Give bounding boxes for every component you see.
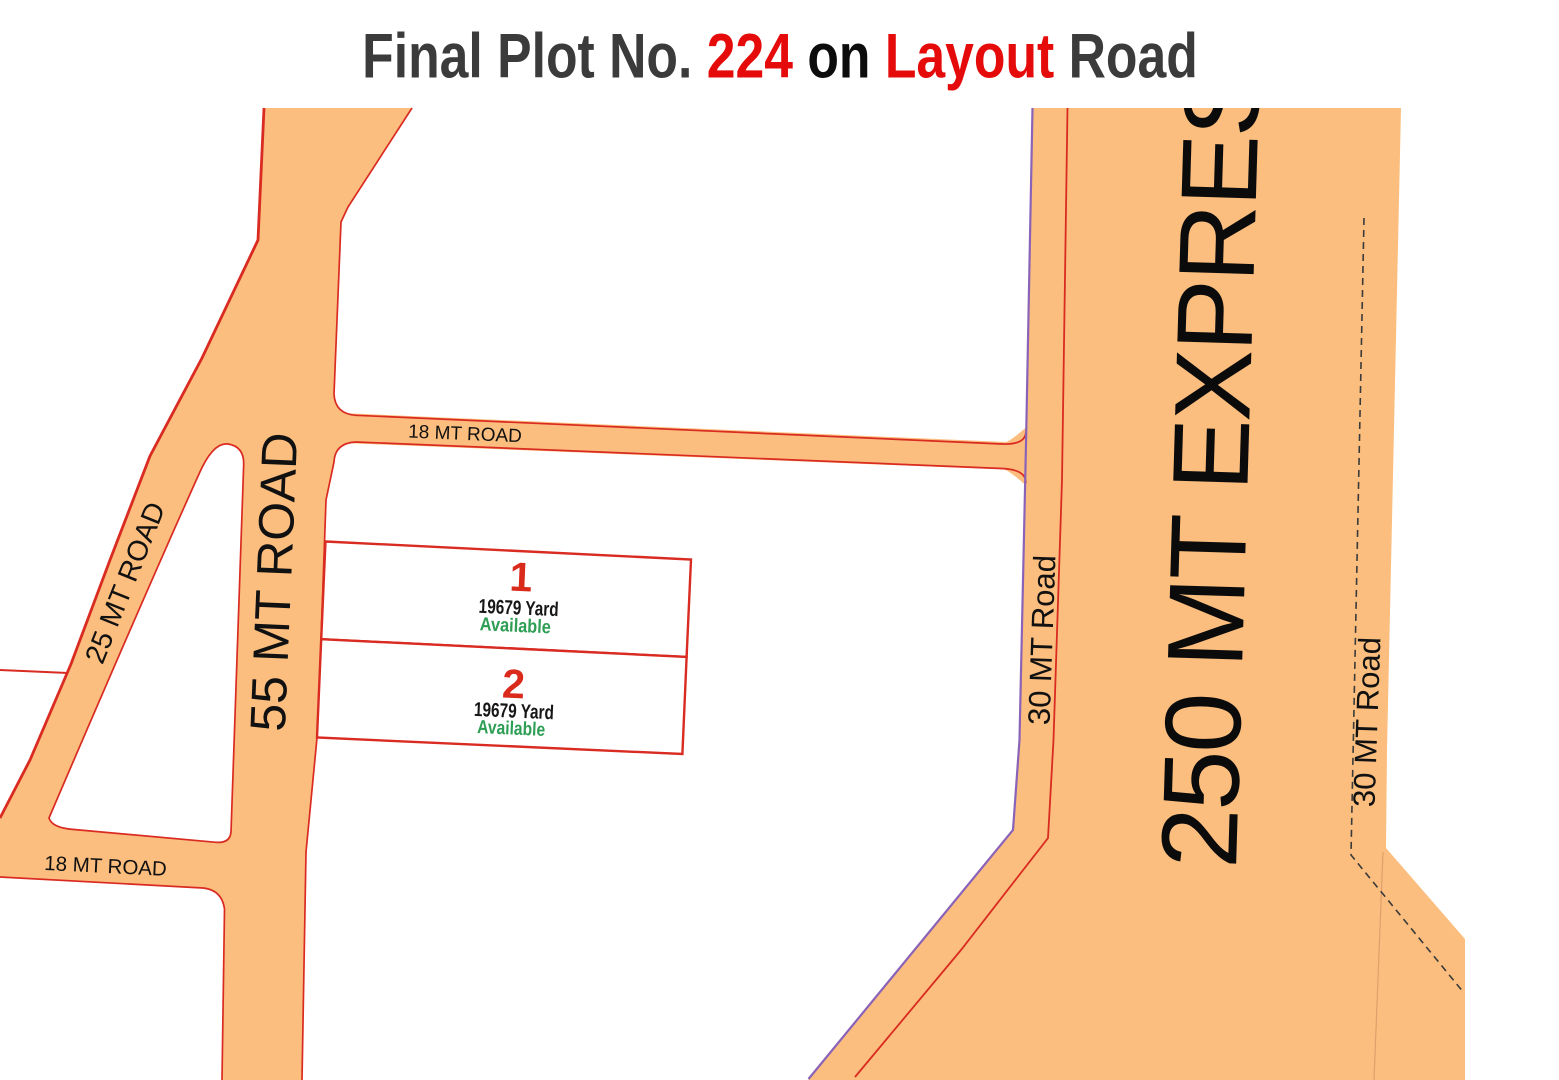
- svg-text:Final Plot No. 224 on Layout R: Final Plot No. 224 on Layout Road: [362, 22, 1198, 92]
- svg-text:1: 1: [509, 554, 534, 601]
- svg-text:Available: Available: [479, 614, 551, 638]
- svg-text:Available: Available: [477, 717, 546, 741]
- svg-text:30 MT Road: 30 MT Road: [1347, 636, 1388, 807]
- svg-text:30 MT Road: 30 MT Road: [1022, 554, 1063, 725]
